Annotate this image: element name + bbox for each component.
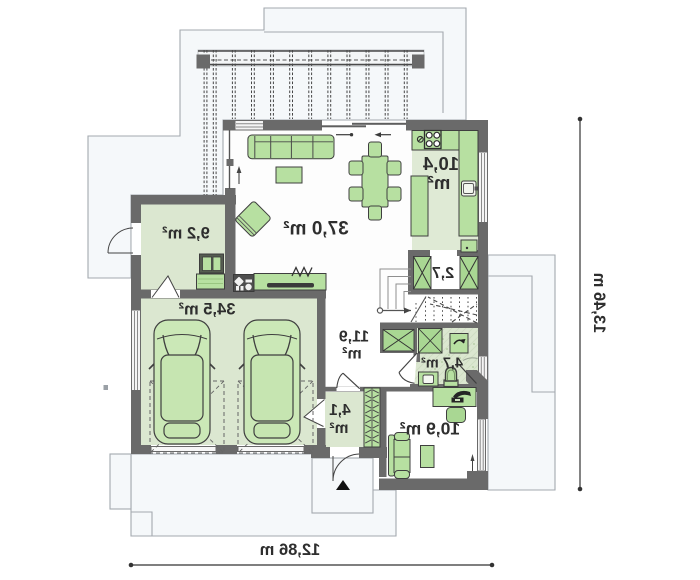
svg-text:34,5 m²: 34,5 m² — [178, 301, 235, 319]
svg-text:9,2 m²: 9,2 m² — [162, 225, 210, 243]
svg-text:4,1: 4,1 — [329, 402, 351, 419]
svg-text:37,0 m²: 37,0 m² — [283, 219, 348, 240]
svg-text:m²: m² — [428, 172, 451, 193]
svg-text:10,4: 10,4 — [422, 153, 459, 174]
svg-text:m²: m² — [342, 346, 362, 363]
svg-text:13,46 m: 13,46 m — [590, 273, 608, 334]
svg-text:4,7 m²: 4,7 m² — [421, 356, 463, 372]
svg-text:10,9 m²: 10,9 m² — [400, 419, 460, 439]
svg-text:11,9: 11,9 — [339, 329, 369, 346]
svg-text:m²: m² — [330, 420, 349, 437]
svg-text:2,7: 2,7 — [432, 265, 454, 282]
svg-text:12,86 m: 12,86 m — [260, 541, 321, 559]
